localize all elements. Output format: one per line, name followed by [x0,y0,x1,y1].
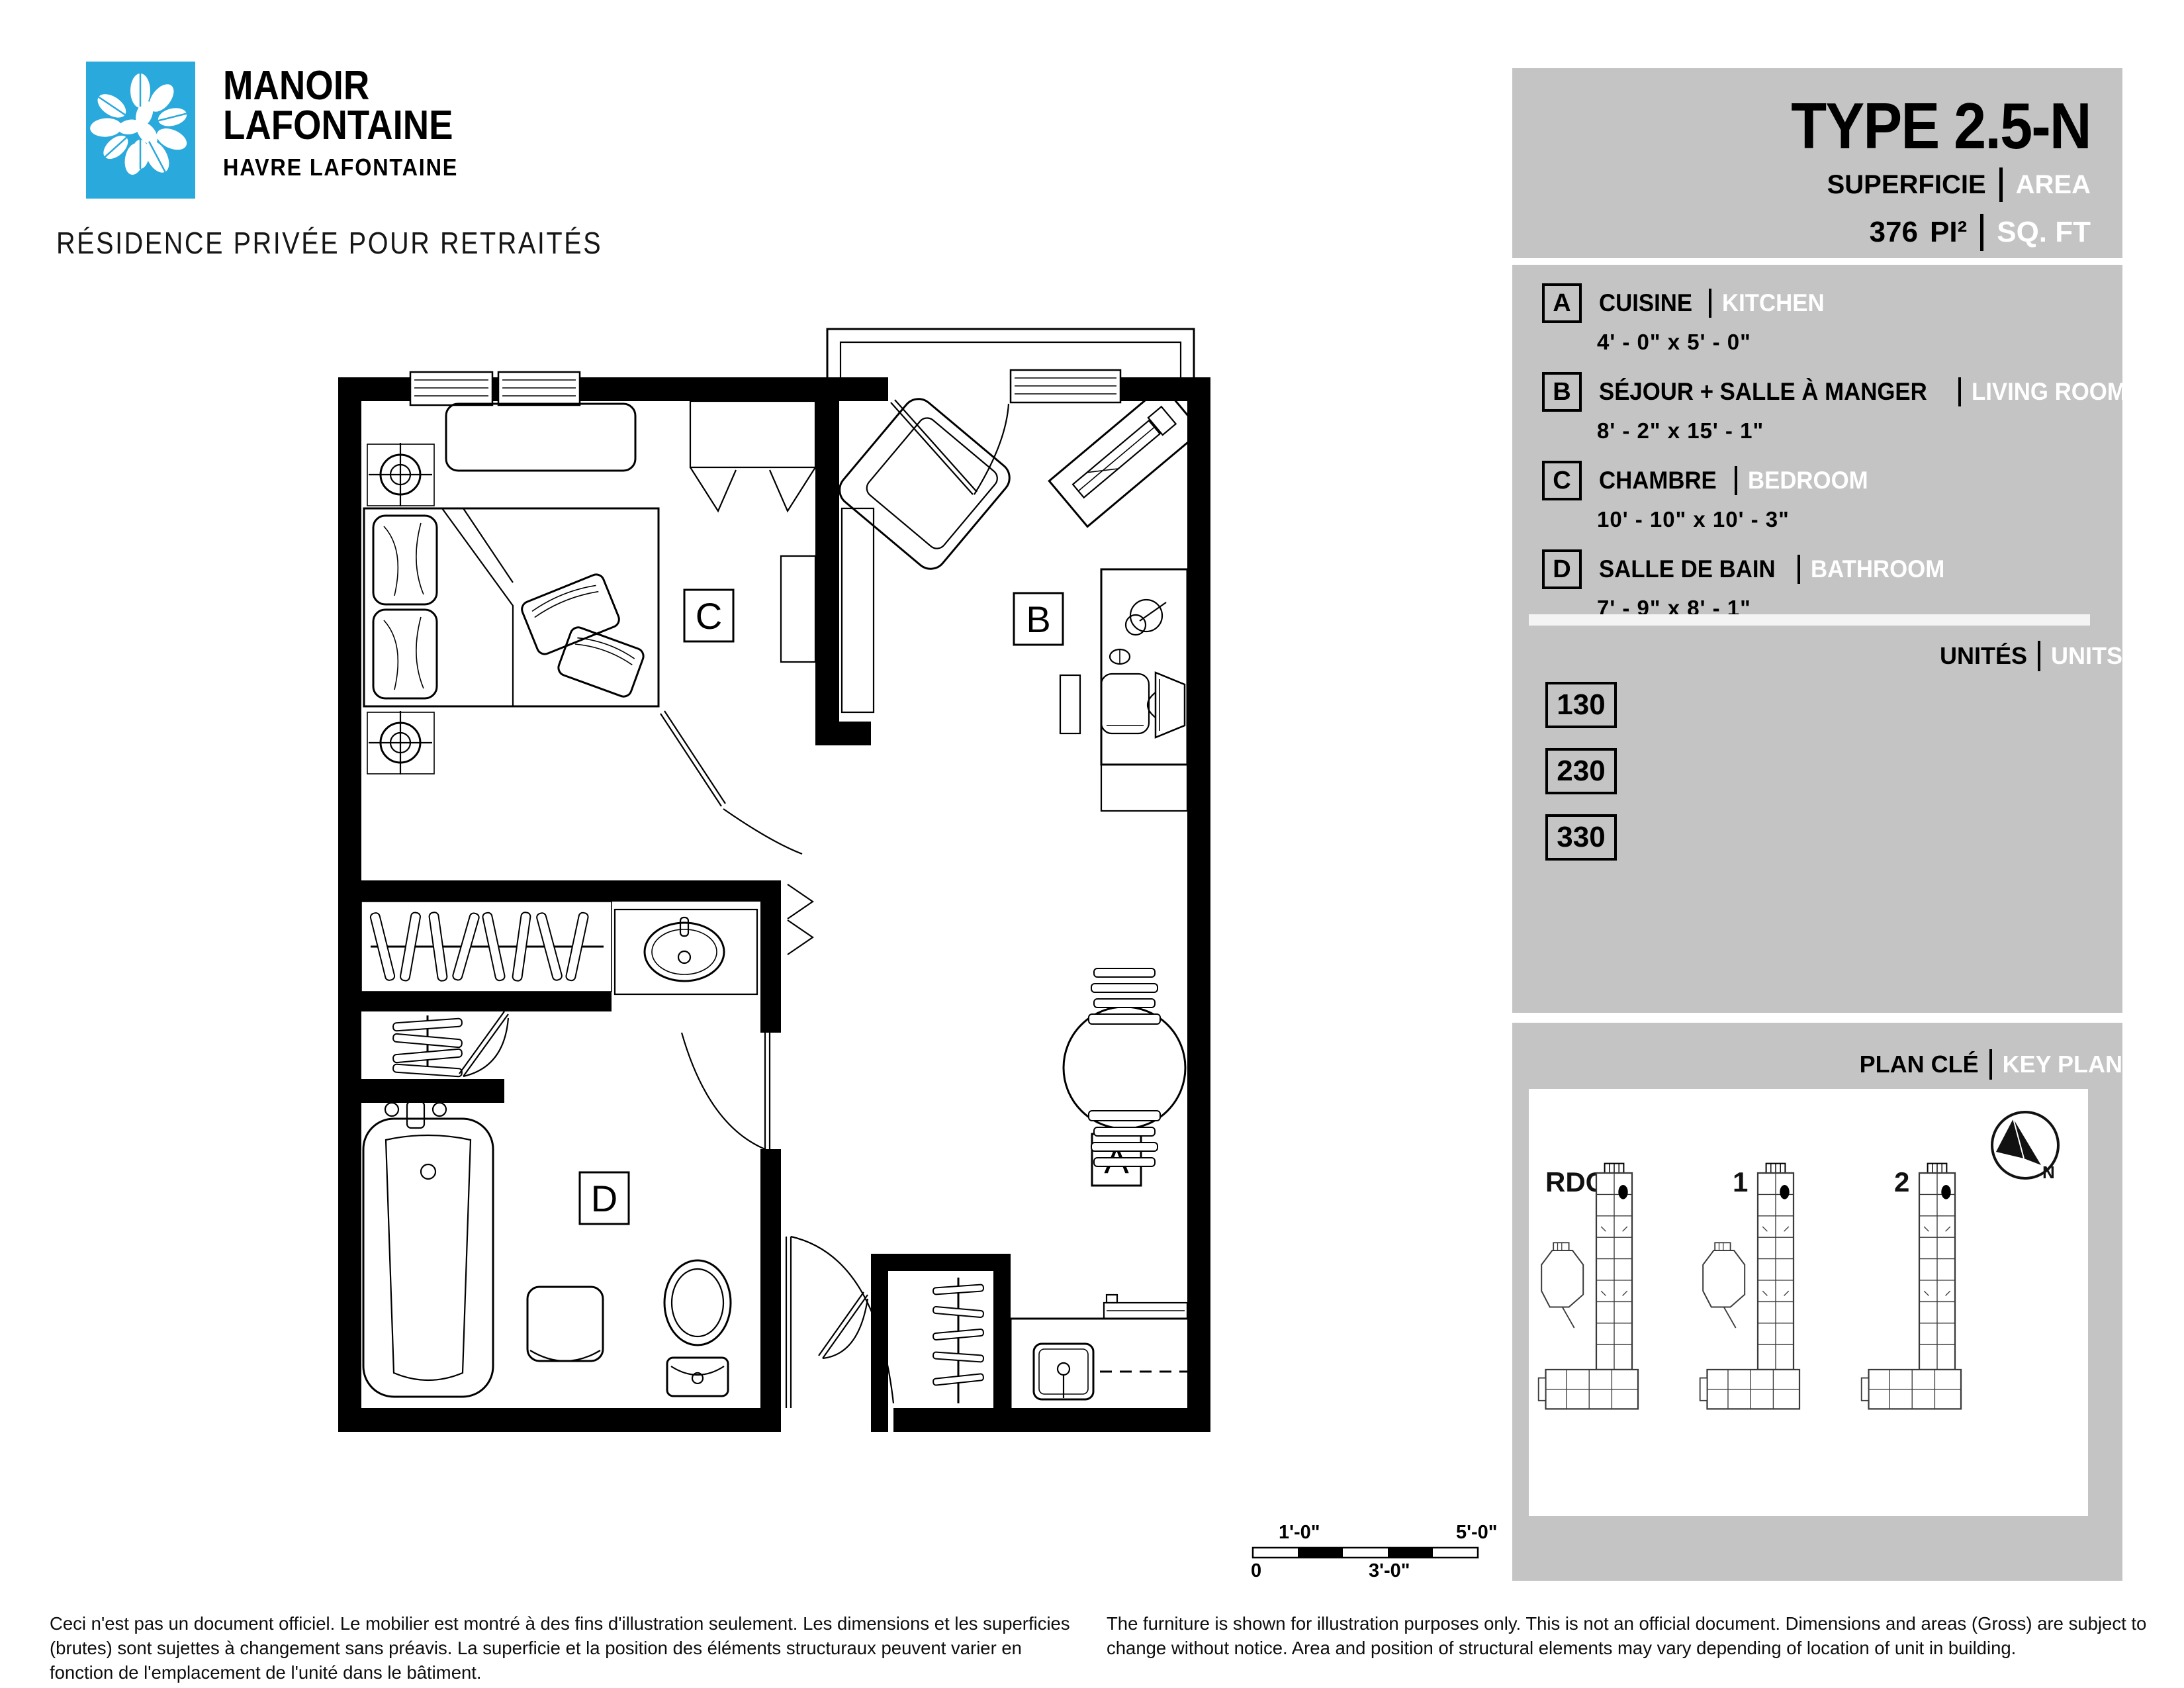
bathroom-stool [527,1287,603,1361]
desk [1060,569,1187,811]
brand-name-line1: MANOIR [223,66,453,106]
unit-type-title: TYPE 2.5-N [1791,93,2091,158]
legend-letter-d: D [1542,549,1582,589]
superficie-label: SUPERFICIE [1827,170,1986,200]
scale-bar: 1'-0" 5'-0" 0 3'-0" [1231,1519,1509,1579]
area-label: AREA [2016,170,2091,200]
svg-text:C: C [696,595,722,637]
scale-label-3ft: 3'-0" [1369,1560,1410,1582]
header-divider-2 [1980,214,1983,251]
nightstand-bottom [367,711,434,774]
room-legend-panel: A CUISINE KITCHEN 4' - 0" x 5' - 0" B SÉ… [1512,265,2122,1013]
kitchen-counter [1011,1295,1187,1408]
balcony-door [891,370,1120,494]
hall-closet [361,892,612,992]
legend-name-fr: CHAMBRE [1599,467,1717,494]
legend-item-bedroom: C CHAMBRE BEDROOM [1542,461,2122,500]
scale-label-zero: 0 [1251,1560,1261,1582]
brand-name-line2: LAFONTAINE [223,106,453,146]
bedroom-wardrobe [781,556,815,662]
svg-text:D: D [591,1178,617,1219]
legend-divider [1958,377,1961,406]
legend-name-fr: SÉJOUR + SALLE À MANGER [1599,378,1927,406]
area-unit-en: SQ. FT [1997,216,2091,249]
room-label-bathroom: D [580,1172,629,1224]
bedroom-closet [690,401,815,511]
bedroom-door [660,711,802,854]
area-value: 376 [1870,216,1918,249]
unit-type-panel: TYPE 2.5-N SUPERFICIE AREA 376 PI² SQ. F… [1512,68,2122,258]
leaves-icon [86,62,195,199]
legend-divider [1709,289,1711,318]
room-label-living: B [1014,593,1063,645]
legend-divider [1735,466,1737,495]
armchair [833,393,1016,575]
unit-number-330: 330 [1545,814,1617,861]
legend-letter-c: C [1542,461,1582,500]
brand-logo [86,62,195,199]
legend-item-kitchen: A CUISINE KITCHEN [1542,283,2122,323]
legend-item-bathroom: D SALLE DE BAIN BATHROOM [1542,549,2122,589]
walls [338,377,1210,1432]
bathroom-vanity [615,910,757,994]
north-label: N [2042,1162,2055,1182]
throw-pillow [557,625,646,698]
unit-number-230: 230 [1545,748,1617,794]
legend-name-en: BATHROOM [1811,555,1944,583]
legend-name-fr: SALLE DE BAIN [1599,555,1776,583]
key-plan-drawing: N RDC 1 2 [1512,1023,2122,1581]
tv-console [1049,386,1201,527]
legend-dims-living: 8' - 2" x 15' - 1" [1597,418,2122,444]
header-divider [1999,167,2003,202]
room-label-bedroom: C [684,590,733,641]
bathtub [363,1102,493,1397]
legend-name-fr: CUISINE [1599,289,1692,317]
legend-name-en: KITCHEN [1722,289,1825,317]
legend-name-en: BEDROOM [1748,467,1868,494]
legend-letter-b: B [1542,372,1582,412]
legend-dims-kitchen: 4' - 0" x 5' - 0" [1597,330,2122,355]
units-title-fr: UNITÉS [1940,642,2027,670]
linen-closet [393,1011,508,1077]
area-unit-fr: PI² [1930,216,1967,249]
legend-name-en: LIVING ROOM + DINING [1972,378,2184,406]
floorplan-document: { "brand": { "name_line1": "MANOIR", "na… [0,0,2184,1688]
unit-number-list: 130 230 330 [1512,682,1617,880]
legend-dims-bedroom: 10' - 10" x 10' - 3" [1597,507,2122,532]
disclaimer-en: The furniture is shown for illustration … [1107,1611,2159,1660]
entry-closet [819,1254,1011,1432]
desk-chair [1101,674,1149,733]
bathroom-door [682,1033,770,1149]
brand-subtitle: HAVRE LAFONTAINE [223,156,458,179]
toilet [664,1260,731,1396]
dining-chair-top [1089,968,1160,1024]
floor-plan-drawing: C [318,305,1218,1443]
brand-tagline: RÉSIDENCE PRIVÉE POUR RETRAITÉS [56,225,602,261]
scale-label-5ft: 5'-0" [1456,1522,1498,1544]
keyplan-floor-1: 1 [1733,1166,1748,1197]
living-sideboard [842,508,874,712]
bedroom-bench [446,404,635,471]
hall-closet-bifold [788,884,813,955]
nightstand-top [367,443,434,506]
bed [364,508,659,706]
legend-letter-a: A [1542,283,1582,323]
legend-item-living: B SÉJOUR + SALLE À MANGER LIVING ROOM + … [1542,372,2122,412]
units-title-en: UNITS [2051,642,2122,670]
units-divider-bar [1529,614,2090,626]
disclaimer-fr: Ceci n'est pas un document officiel. Le … [50,1611,1072,1685]
keyplan-floor-2: 2 [1894,1166,1909,1197]
unit-number-130: 130 [1545,682,1617,728]
svg-text:B: B [1026,598,1050,640]
units-divider [2038,641,2040,671]
scale-label-1ft: 1'-0" [1279,1522,1320,1544]
legend-divider [1797,555,1800,584]
